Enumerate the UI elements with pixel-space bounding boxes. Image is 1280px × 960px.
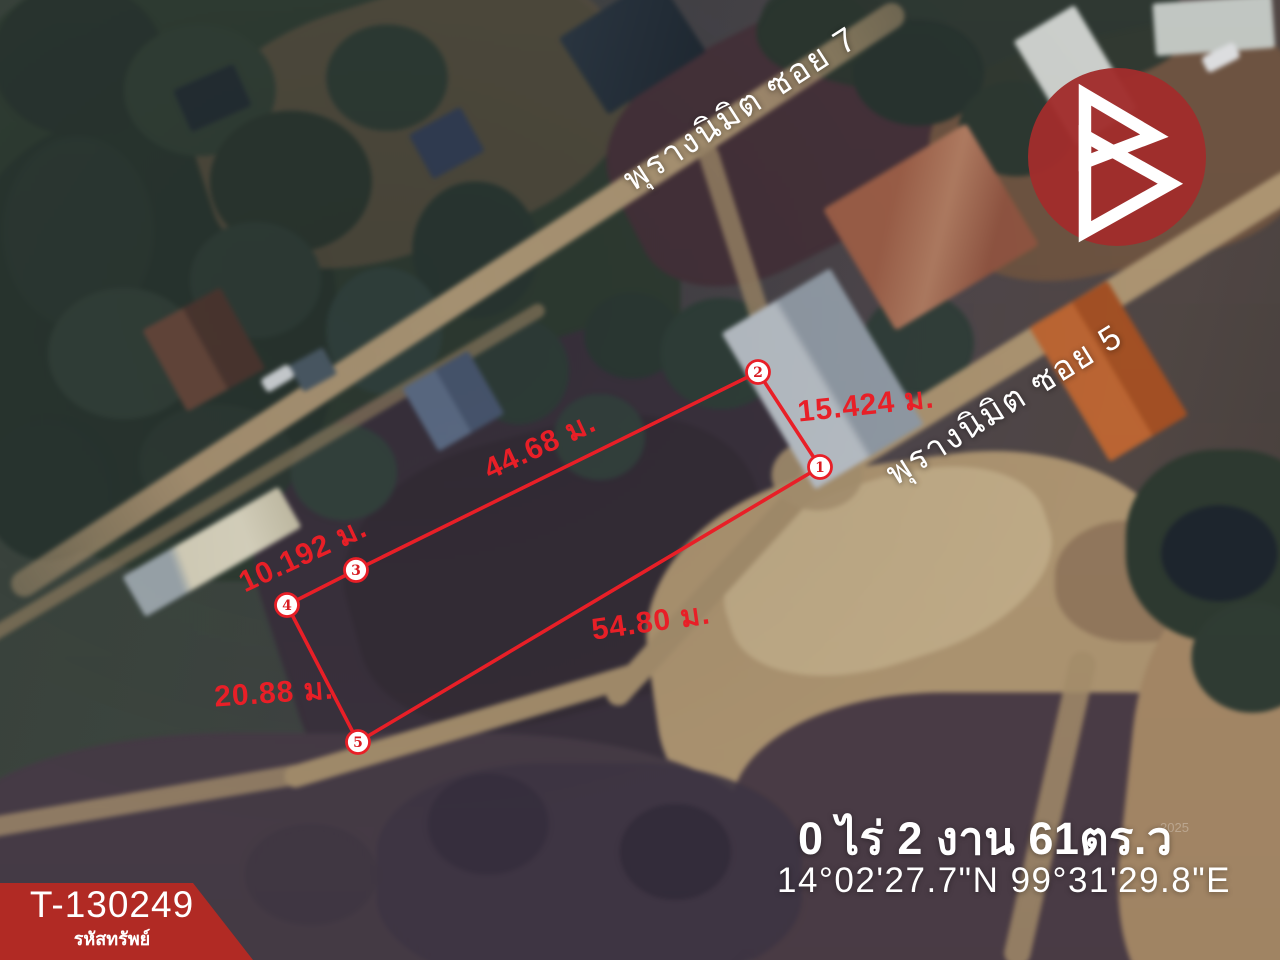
property-code: T-130249 [14,884,210,926]
tree-canopy [620,804,731,900]
tree-canopy [245,824,377,925]
brand-logo-circle [1028,68,1206,246]
measurement-label: 20.88 ม. [213,665,336,720]
tree-canopy [427,773,548,874]
coordinates-text: 14°02'27.7"N 99°31'29.8"E [777,861,1231,901]
terrain-pond-shadow [1161,505,1277,601]
satellite-map: 12345 15.424 ม.44.68 ม.10.192 ม.20.88 ม.… [0,0,1280,960]
brand-logo [1028,68,1206,246]
building-roof [1152,0,1275,56]
property-code-caption: รหัสทรัพย์ [14,924,210,953]
tree-canopy [326,25,447,131]
